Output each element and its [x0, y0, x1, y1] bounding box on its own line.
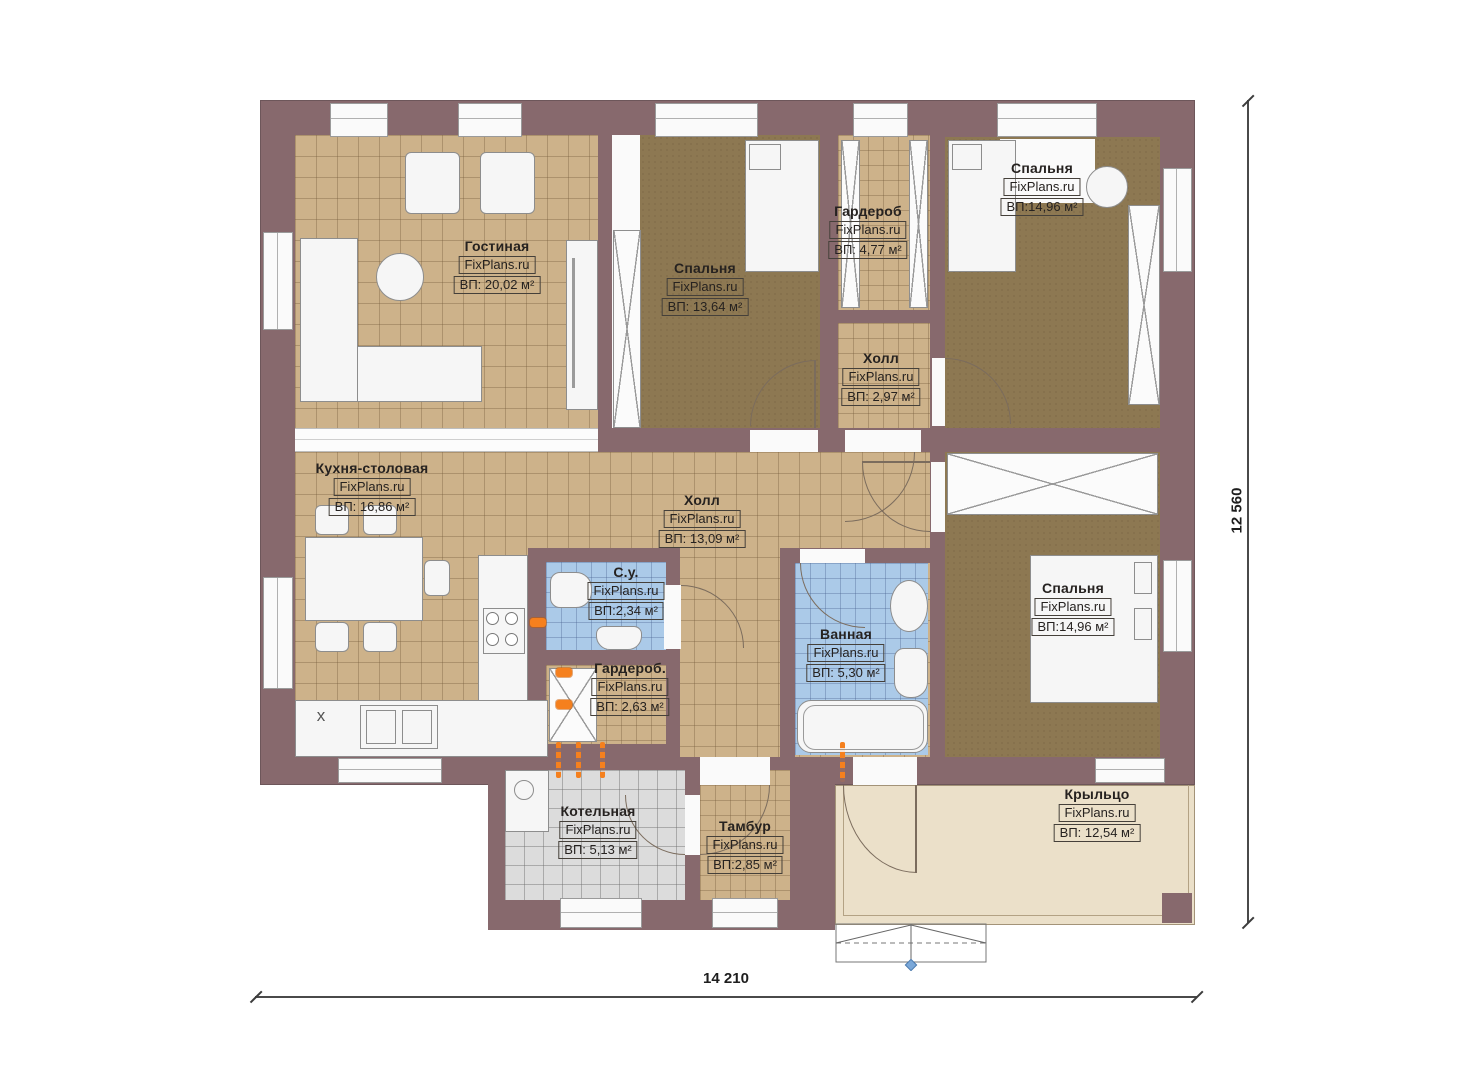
bedroom2-door-opening	[750, 430, 818, 452]
hall-small-door-opening	[845, 430, 921, 452]
window-right-bedroom3	[1163, 168, 1192, 272]
window-left-kitchen	[263, 577, 293, 689]
window-kitchen-bottom	[338, 758, 442, 783]
room-label-wardrobe1: Гардероб FixPlans.ru ВП: 4,77 м²	[828, 203, 907, 259]
room-name: Холл	[659, 492, 746, 508]
room-name: Гардероб	[828, 203, 907, 219]
room-label-porch: Крыльцо FixPlans.ru ВП: 12,54 м²	[1054, 786, 1141, 842]
dining-table	[305, 537, 423, 621]
room-area: ВП: 2,63 м²	[590, 698, 669, 716]
room-area: ВП: 5,13 м²	[558, 841, 637, 859]
tv-bench	[566, 240, 598, 410]
watermark: FixPlans.ru	[587, 582, 664, 600]
watermark: FixPlans.ru	[842, 368, 919, 386]
bedroom3-door-opening	[932, 358, 945, 426]
room-label-wardrobe2: Гардероб. FixPlans.ru ВП: 2,63 м²	[590, 660, 669, 716]
window-left-living	[263, 232, 293, 330]
heating-riser	[576, 742, 581, 778]
watermark: FixPlans.ru	[706, 836, 783, 854]
wardrobe-cabinet	[1128, 205, 1160, 405]
toilet	[894, 648, 928, 698]
room-label-hall-main: Холл FixPlans.ru ВП: 13,09 м²	[659, 492, 746, 548]
front-door-opening	[853, 757, 917, 785]
bedroom2-door-leaf	[814, 360, 816, 428]
watermark: FixPlans.ru	[591, 678, 668, 696]
bathroom-sink	[890, 580, 928, 632]
burner-icon	[486, 633, 499, 646]
chair-round	[1086, 166, 1128, 208]
dining-chair	[363, 622, 397, 652]
dimension-line-bottom	[255, 996, 1197, 998]
bed-pillow	[749, 144, 781, 170]
room-name: Тамбур	[706, 818, 783, 834]
window-porch-wall	[1095, 758, 1165, 783]
room-label-kitchen: Кухня-столовая FixPlans.ru ВП: 16,86 м²	[316, 460, 429, 516]
kitchen-x-mark: x	[308, 706, 334, 730]
watermark: FixPlans.ru	[458, 256, 535, 274]
bedroom4-door-opening	[931, 462, 945, 532]
radiator-valve	[556, 700, 572, 709]
dining-chair	[424, 560, 450, 596]
room-label-bedroom3: Спальня FixPlans.ru ВП:14,96 м²	[1000, 160, 1083, 216]
wardrobe-cabinet	[947, 453, 1158, 515]
window-top-2	[458, 103, 522, 137]
room-label-bedroom2: Спальня FixPlans.ru ВП: 13,64 м²	[662, 260, 749, 316]
radiator-valve	[556, 668, 572, 677]
dimension-height-label: 12 560	[1229, 471, 1246, 551]
room-area: ВП: 13,64 м²	[662, 298, 749, 316]
tambur-door-opening	[700, 757, 770, 785]
bed-pillow	[952, 144, 982, 170]
bathroom-wall-left	[780, 548, 795, 757]
room-name: Ванная	[806, 626, 885, 642]
dimension-line-right	[1247, 100, 1249, 923]
toilet	[550, 572, 592, 608]
room-name: Спальня	[662, 260, 749, 276]
wardrobe-cabinet	[613, 230, 641, 428]
closet-shelving	[909, 140, 928, 308]
watermark: FixPlans.ru	[1034, 598, 1111, 616]
room-name: Крыльцо	[1054, 786, 1141, 802]
room-label-living: Гостиная FixPlans.ru ВП: 20,02 м²	[454, 238, 541, 294]
room-name: Кухня-столовая	[316, 460, 429, 476]
room-label-bathroom: Ванная FixPlans.ru ВП: 5,30 м²	[806, 626, 885, 682]
radiator-valve	[530, 618, 546, 627]
wc-sink	[596, 626, 642, 650]
sofa-horizontal-section	[357, 346, 482, 402]
room-name: Холл	[841, 350, 920, 366]
boiler-unit	[505, 770, 549, 832]
burner-icon	[505, 612, 518, 625]
armchair	[480, 152, 535, 214]
room-label-tambur: Тамбур FixPlans.ru ВП:2,85 м²	[706, 818, 783, 874]
room-label-boiler: Котельная FixPlans.ru ВП: 5,13 м²	[558, 803, 637, 859]
room-label-bedroom4: Спальня FixPlans.ru ВП:14,96 м²	[1031, 580, 1114, 636]
watermark: FixPlans.ru	[1058, 804, 1135, 822]
room-name: Гардероб.	[590, 660, 669, 676]
room-name: С.у.	[587, 564, 664, 580]
room-name: Котельная	[558, 803, 637, 819]
room-area: ВП:2,34 м²	[588, 602, 664, 620]
heating-riser	[556, 742, 561, 778]
bathtub-inner-rim	[803, 705, 924, 750]
window-top-5	[997, 103, 1097, 137]
burner-icon	[505, 633, 518, 646]
window-top-1	[330, 103, 388, 137]
window-top-3	[655, 103, 758, 137]
room-label-hall-small: Холл FixPlans.ru ВП: 2,97 м²	[841, 350, 920, 406]
heating-riser	[600, 742, 605, 778]
heating-riser	[840, 742, 845, 782]
room-area: ВП: 20,02 м²	[454, 276, 541, 294]
room-label-wc: С.у. FixPlans.ru ВП:2,34 м²	[587, 564, 664, 620]
bed-pillow	[1134, 608, 1152, 640]
boiler-dial	[514, 780, 534, 800]
kitchen-sink-bowl	[366, 710, 396, 744]
watermark: FixPlans.ru	[663, 510, 740, 528]
living-kitchen-opening	[295, 428, 598, 452]
watermark: FixPlans.ru	[333, 478, 410, 496]
dining-chair	[315, 622, 349, 652]
entrance-steps-symbol	[833, 921, 989, 971]
floor-plan-canvas: x Гостиная FixPlans.ru ВП: 20,02 м² Спал…	[0, 0, 1474, 1080]
window-top-4	[853, 103, 908, 137]
room-area: ВП:14,96 м²	[1000, 198, 1083, 216]
sofa-vertical-section	[300, 238, 358, 402]
porch-corner-post	[1162, 893, 1192, 923]
room-area: ВП: 4,77 м²	[828, 241, 907, 259]
room-area: ВП: 16,86 м²	[329, 498, 416, 516]
room-area: ВП: 12,54 м²	[1054, 824, 1141, 842]
room-area: ВП:2,85 м²	[707, 856, 783, 874]
boiler-door-opening	[685, 795, 700, 855]
watermark: FixPlans.ru	[1003, 178, 1080, 196]
bathroom-door-opening	[800, 549, 865, 563]
room-area: ВП: 5,30 м²	[806, 664, 885, 682]
bedroom4-door-leaf	[862, 461, 930, 463]
room-area: ВП: 13,09 м²	[659, 530, 746, 548]
kitchen-sink-drainer	[402, 710, 432, 744]
room-name: Гостиная	[454, 238, 541, 254]
watermark: FixPlans.ru	[807, 644, 884, 662]
room-name: Спальня	[1000, 160, 1083, 176]
bed-pillow	[1134, 562, 1152, 594]
window-right-bedroom4	[1163, 560, 1192, 652]
room-area: ВП: 2,97 м²	[841, 388, 920, 406]
room-name: Спальня	[1031, 580, 1114, 596]
window-tambur-bottom	[712, 898, 778, 928]
room-area: ВП:14,96 м²	[1031, 618, 1114, 636]
armchair	[405, 152, 460, 214]
wc-door-opening	[664, 585, 681, 649]
coffee-table	[376, 253, 424, 301]
burner-icon	[486, 612, 499, 625]
dimension-width-label: 14 210	[668, 970, 784, 987]
tv-screen	[572, 258, 575, 388]
window-boiler-bottom	[560, 898, 642, 928]
watermark: FixPlans.ru	[829, 221, 906, 239]
watermark: FixPlans.ru	[666, 278, 743, 296]
watermark: FixPlans.ru	[559, 821, 636, 839]
front-door-leaf	[915, 785, 917, 873]
